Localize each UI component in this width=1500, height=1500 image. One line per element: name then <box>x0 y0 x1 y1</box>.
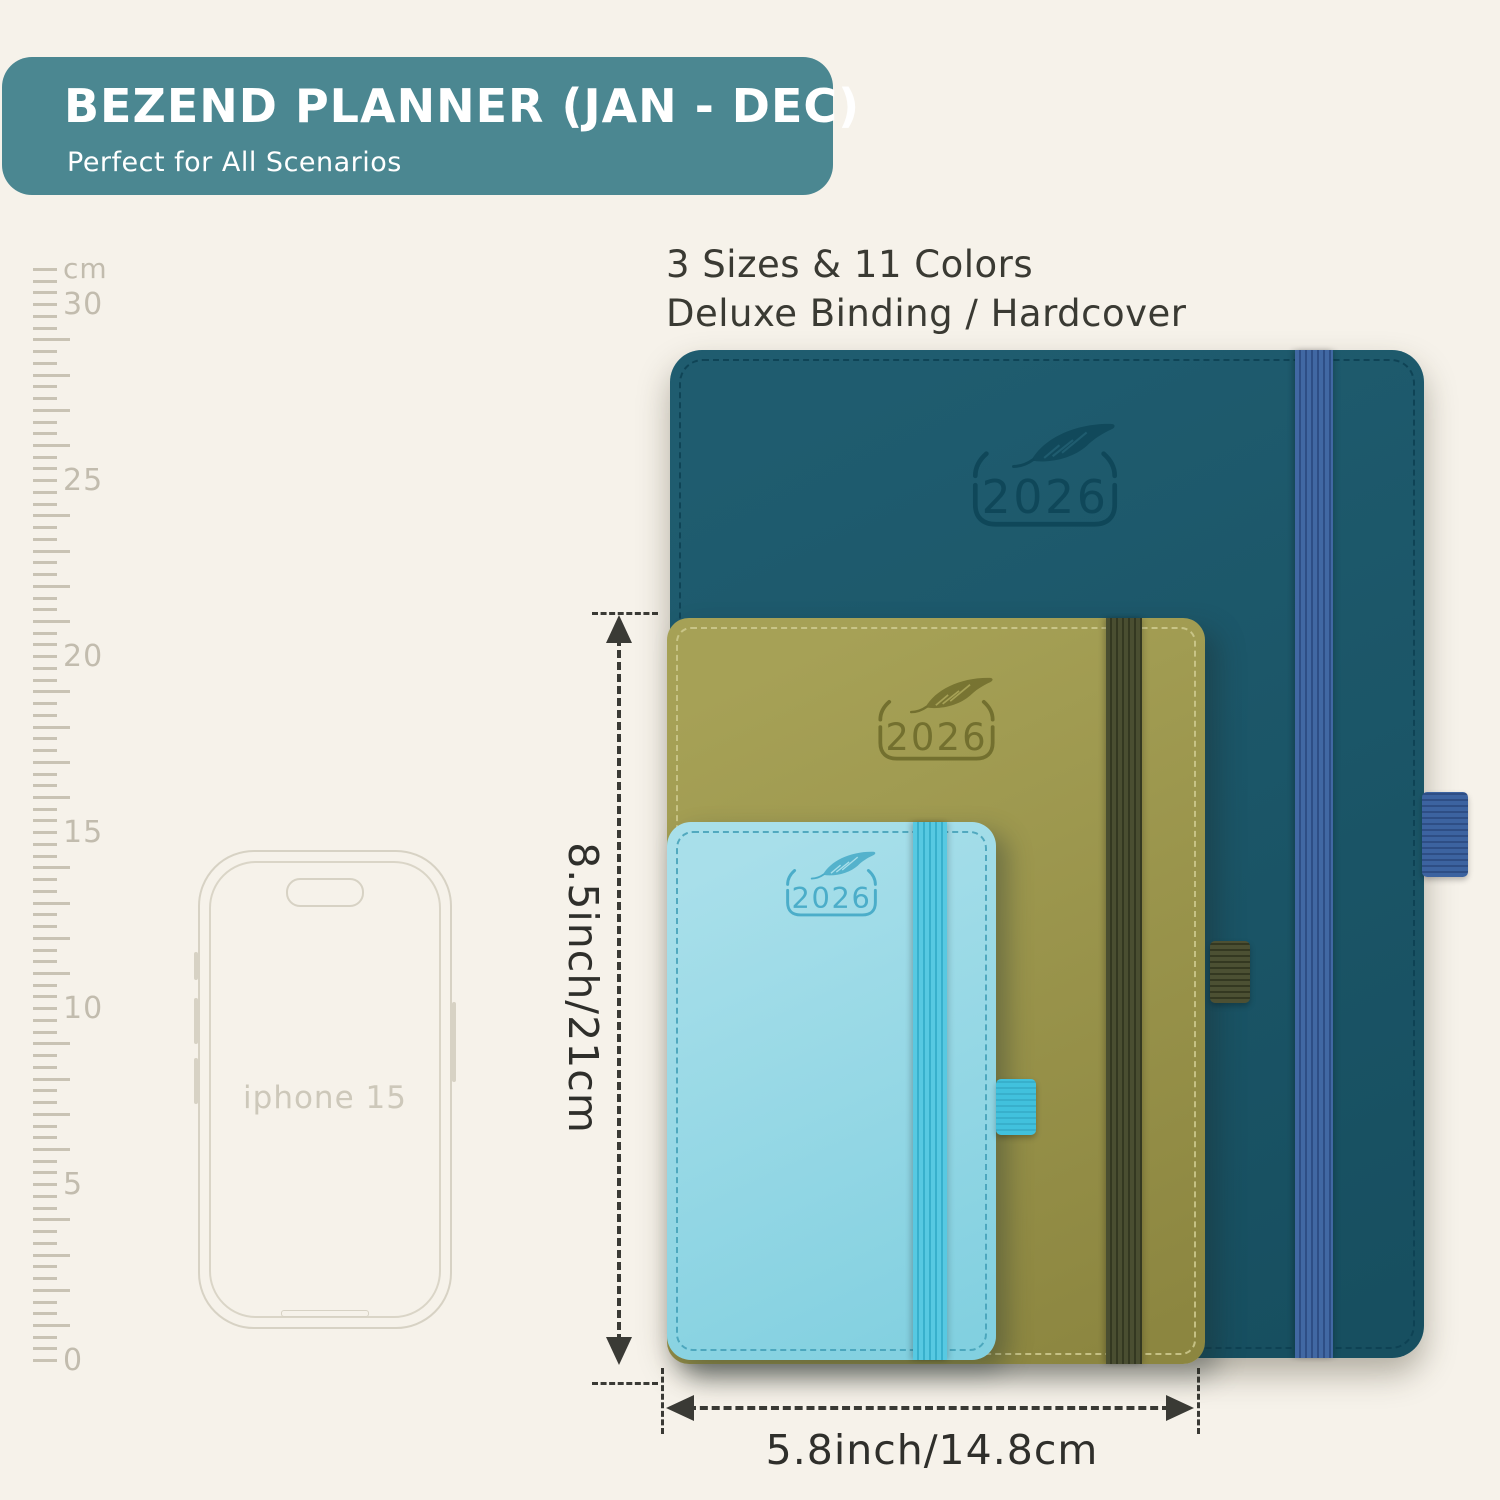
phone-volume-down-button <box>194 1058 198 1104</box>
info-line-binding: Deluxe Binding / Hardcover <box>666 292 1186 335</box>
ruler-tick <box>33 902 70 905</box>
ruler-tick <box>33 819 57 822</box>
info-line-sizes-colors: 3 Sizes & 11 Colors <box>666 243 1033 286</box>
ruler-tick <box>33 1089 57 1092</box>
ruler-tick <box>33 409 70 412</box>
logo-2026: 2026 <box>868 673 1005 769</box>
ruler-tick <box>33 1125 57 1128</box>
ruler-tick <box>33 784 57 787</box>
ruler-tick <box>33 972 70 975</box>
height-arrow-line <box>617 638 621 1342</box>
ruler-tick <box>33 491 57 494</box>
ruler-tick <box>33 667 57 670</box>
ruler-tick <box>33 1312 57 1315</box>
ruler-tick <box>33 374 70 377</box>
ruler-tick <box>33 866 70 869</box>
ruler-label: 20 <box>63 639 103 674</box>
ruler-tick <box>33 526 57 529</box>
ruler-tick <box>33 608 57 611</box>
ruler-tick <box>33 749 57 752</box>
ruler-tick <box>33 984 57 987</box>
product-size-infographic: BEZEND PLANNER (JAN - DEC) Perfect for A… <box>0 0 1500 1500</box>
ruler-tick <box>33 855 57 858</box>
logo-year-text: 2026 <box>792 881 872 915</box>
width-arrow-line <box>688 1406 1170 1410</box>
ruler-tick <box>33 620 70 623</box>
ruler-tick <box>33 397 57 400</box>
height-arrowhead-up <box>606 615 632 643</box>
ruler-tick <box>33 561 57 564</box>
ruler-tick <box>33 1136 57 1139</box>
ruler-tick: 15 <box>33 831 57 834</box>
ruler-tick <box>33 1277 57 1280</box>
ruler-tick <box>33 338 70 341</box>
ruler-tick <box>33 773 57 776</box>
ruler-tick <box>33 1242 57 1245</box>
ruler-tick <box>33 573 57 576</box>
ruler-tick <box>33 995 57 998</box>
ruler-tick <box>33 878 57 881</box>
ruler-tick <box>33 444 70 447</box>
ruler-tick: 5 <box>33 1183 57 1186</box>
ruler-tick <box>33 761 70 764</box>
ruler-tick <box>33 890 57 893</box>
ruler-tick <box>33 597 57 600</box>
phone-volume-up-button <box>194 998 198 1044</box>
ruler-tick <box>33 737 57 740</box>
feather-icon <box>812 852 876 879</box>
ruler-label: 0 <box>63 1343 83 1378</box>
ruler-tick <box>33 1195 57 1198</box>
banner: BEZEND PLANNER (JAN - DEC) Perfect for A… <box>2 57 833 195</box>
feather-icon <box>1014 424 1115 467</box>
ruler-tick <box>33 1066 57 1069</box>
ruler-tick <box>33 1113 70 1116</box>
ruler-tick <box>33 1078 70 1081</box>
elastic-band <box>913 822 947 1360</box>
ruler-tick <box>33 1171 57 1174</box>
ruler-label: 10 <box>63 991 103 1026</box>
ruler-tick <box>33 960 57 963</box>
ruler-tick <box>33 1336 57 1339</box>
feather-icon <box>911 678 992 712</box>
logo-year-text: 2026 <box>982 470 1109 524</box>
ruler-label: 25 <box>63 463 103 498</box>
ruler-tick <box>33 714 57 717</box>
ruler-tick <box>33 679 57 682</box>
ruler-tick <box>33 538 57 541</box>
ruler-tick: 10 <box>33 1007 57 1010</box>
ruler-tick <box>33 726 70 729</box>
ruler-tick <box>33 1019 57 1022</box>
ruler-tick <box>33 1031 57 1034</box>
ruler-label: 30 <box>63 287 103 322</box>
banner-subtitle: Perfect for All Scenarios <box>67 147 402 178</box>
ruler-tick <box>33 1289 70 1292</box>
ruler-tick <box>33 1301 57 1304</box>
ruler-tick: 25 <box>33 479 57 482</box>
logo-year-text: 2026 <box>885 716 987 759</box>
ruler-tick <box>33 291 57 294</box>
width-extension-line-right <box>1197 1368 1200 1434</box>
ruler-tick <box>33 949 57 952</box>
ruler-tick <box>33 1324 70 1327</box>
ruler-tick <box>33 796 70 799</box>
ruler-tick <box>33 925 57 928</box>
ruler-tick <box>33 280 57 283</box>
ruler-tick <box>33 456 57 459</box>
elastic-band <box>1106 618 1142 1364</box>
ruler-tick <box>33 702 57 705</box>
ruler-tick: cm <box>33 268 57 271</box>
ruler-tick <box>33 913 57 916</box>
width-dimension-label: 5.8inch/14.8cm <box>732 1426 1132 1474</box>
pen-loop <box>1422 792 1468 877</box>
ruler-tick <box>33 315 57 318</box>
logo-2026: 2026 <box>778 848 885 923</box>
ruler-tick: 0 <box>33 1359 57 1362</box>
ruler-tick <box>33 1218 70 1221</box>
height-dimension-label: 8.5inch/21cm <box>561 838 605 1138</box>
height-arrowhead-down <box>606 1337 632 1365</box>
height-extension-line-bottom <box>592 1382 658 1385</box>
ruler-tick <box>33 350 57 353</box>
pen-loop <box>996 1079 1036 1135</box>
phone-power-button <box>452 1002 456 1082</box>
ruler-tick <box>33 432 57 435</box>
dynamic-island <box>286 878 364 907</box>
phone-label: iphone 15 <box>200 1080 450 1116</box>
ruler-tick <box>33 1054 57 1057</box>
ruler-tick <box>33 1042 70 1045</box>
ruler-label: cm <box>63 252 108 285</box>
ruler-tick <box>33 327 57 330</box>
width-arrowhead-right <box>1166 1395 1194 1421</box>
ruler-tick <box>33 1160 57 1163</box>
ruler-tick <box>33 843 57 846</box>
width-extension-line-left <box>661 1368 664 1434</box>
ruler-tick <box>33 632 57 635</box>
ruler-tick <box>33 1230 57 1233</box>
ruler-label: 15 <box>63 815 103 850</box>
ruler-tick <box>33 585 70 588</box>
ruler-tick <box>33 362 57 365</box>
banner-title: BEZEND PLANNER (JAN - DEC) <box>64 79 860 133</box>
ruler-tick: 30 <box>33 303 57 306</box>
ruler-tick <box>33 1347 57 1350</box>
ruler-tick <box>33 1101 57 1104</box>
ruler-tick <box>33 514 70 517</box>
ruler-tick <box>33 690 70 693</box>
pen-loop <box>1210 941 1250 1003</box>
ruler-tick <box>33 937 70 940</box>
ruler-tick <box>33 1148 70 1151</box>
ruler-tick: 20 <box>33 655 57 658</box>
ruler-tick <box>33 467 57 470</box>
planner-small-skyblue: 2026 <box>667 822 996 1360</box>
ruler-tick <box>33 1254 70 1257</box>
ruler-label: 5 <box>63 1167 83 1202</box>
phone-action-button <box>194 952 198 980</box>
ruler-tick <box>33 1265 57 1268</box>
ruler-tick <box>33 421 57 424</box>
logo-2026: 2026 <box>960 418 1130 537</box>
ruler-tick <box>33 503 57 506</box>
ruler-tick <box>33 808 57 811</box>
ruler-tick <box>33 643 57 646</box>
ruler-tick <box>33 1207 57 1210</box>
elastic-band <box>1295 350 1333 1358</box>
ruler-tick <box>33 385 57 388</box>
ruler-tick <box>33 550 70 553</box>
iphone-outline: iphone 15 <box>198 850 452 1329</box>
width-arrowhead-left <box>666 1395 694 1421</box>
ruler-cm: cm302520151050 <box>33 268 153 1368</box>
phone-speaker-slot <box>281 1310 369 1317</box>
